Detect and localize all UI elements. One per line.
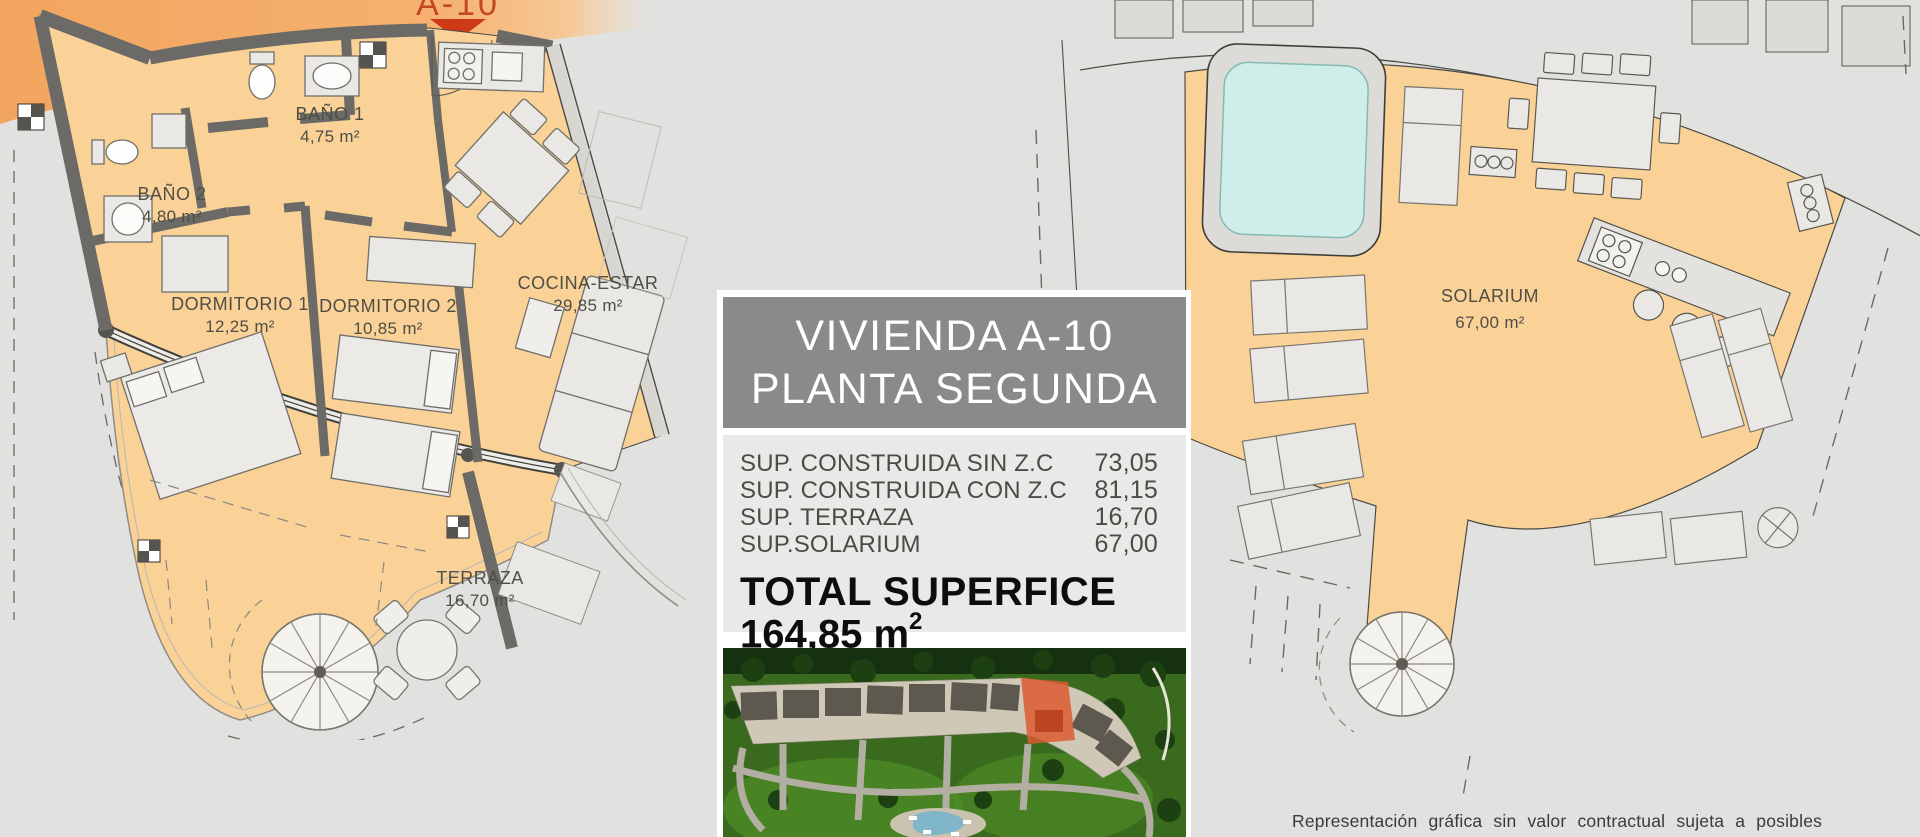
kitchen-counter-symbol (437, 42, 545, 92)
spec-value: 16,70 (1094, 504, 1158, 531)
spec-row: SUP. CONSTRUIDA SIN Z.C 73,05 (740, 450, 1158, 477)
room-label-bano2: BAÑO 2 (137, 183, 206, 204)
pool (1201, 43, 1386, 257)
room-area-cocina: 29,85 m² (553, 296, 623, 315)
room-area-solarium: 67,00 m² (1455, 313, 1525, 332)
floorplan-left: A-10 (0, 0, 770, 740)
room-label-dorm1: DORMITORIO 1 (171, 294, 309, 314)
spec-value: 81,15 (1094, 477, 1158, 504)
spiral-stair-icon-right (1319, 612, 1454, 732)
total-surface: TOTAL SUPERFICE 164,85 m2 (740, 571, 1158, 655)
spec-value: 73,05 (1094, 450, 1158, 477)
info-panel: VIVIENDA A-10 PLANTA SEGUNDA SUP. CONSTR… (717, 290, 1191, 837)
spec-value: 67,00 (1094, 531, 1158, 558)
floorplan-sheet: { "marker": { "label": "A-10" }, "plans"… (0, 0, 1920, 837)
room-area-dorm1: 12,25 m² (205, 317, 275, 336)
bbq-symbol (1469, 146, 1517, 177)
room-label-dorm2: DORMITORIO 2 (319, 296, 457, 316)
room-label-solarium: SOLARIUM (1441, 286, 1539, 306)
spec-row: SUP.SOLARIUM 67,00 (740, 531, 1158, 558)
surface-spec-box: SUP. CONSTRUIDA SIN Z.C 73,05 SUP. CONST… (723, 435, 1186, 632)
room-area-terraza: 16,70 m² (445, 591, 515, 610)
room-label-cocina: COCINA-ESTAR (518, 273, 659, 293)
room-label-bano1: BAÑO 1 (295, 103, 364, 124)
spec-label: SUP. CONSTRUIDA CON Z.C (740, 477, 1067, 504)
panel-title: VIVIENDA A-10 PLANTA SEGUNDA (723, 297, 1186, 428)
total-surface-label: TOTAL SUPERFICE (740, 571, 1158, 613)
room-area-dorm2: 10,85 m² (353, 319, 423, 338)
aerial-site-photo (723, 648, 1186, 837)
highlighted-unit (1021, 678, 1075, 744)
spec-label: SUP. CONSTRUIDA SIN Z.C (740, 450, 1054, 477)
panel-title-line2: PLANTA SEGUNDA (751, 363, 1158, 415)
panel-title-line1: VIVIENDA A-10 (795, 310, 1113, 362)
room-label-terraza: TERRAZA (436, 568, 524, 588)
room-area-bano2: 4,80 m² (142, 207, 202, 226)
aerial-photo-graphic (723, 648, 1186, 837)
disclaimer-text: Representación gráfica sin valor contrac… (1292, 811, 1882, 832)
round-table-symbol (372, 599, 481, 701)
spec-label: SUP.SOLARIUM (740, 531, 921, 558)
spec-label: SUP. TERRAZA (740, 504, 914, 531)
spec-row: SUP. TERRAZA 16,70 (740, 504, 1158, 531)
room-area-bano1: 4,75 m² (300, 127, 360, 146)
spec-row: SUP. CONSTRUIDA CON Z.C 81,15 (740, 477, 1158, 504)
